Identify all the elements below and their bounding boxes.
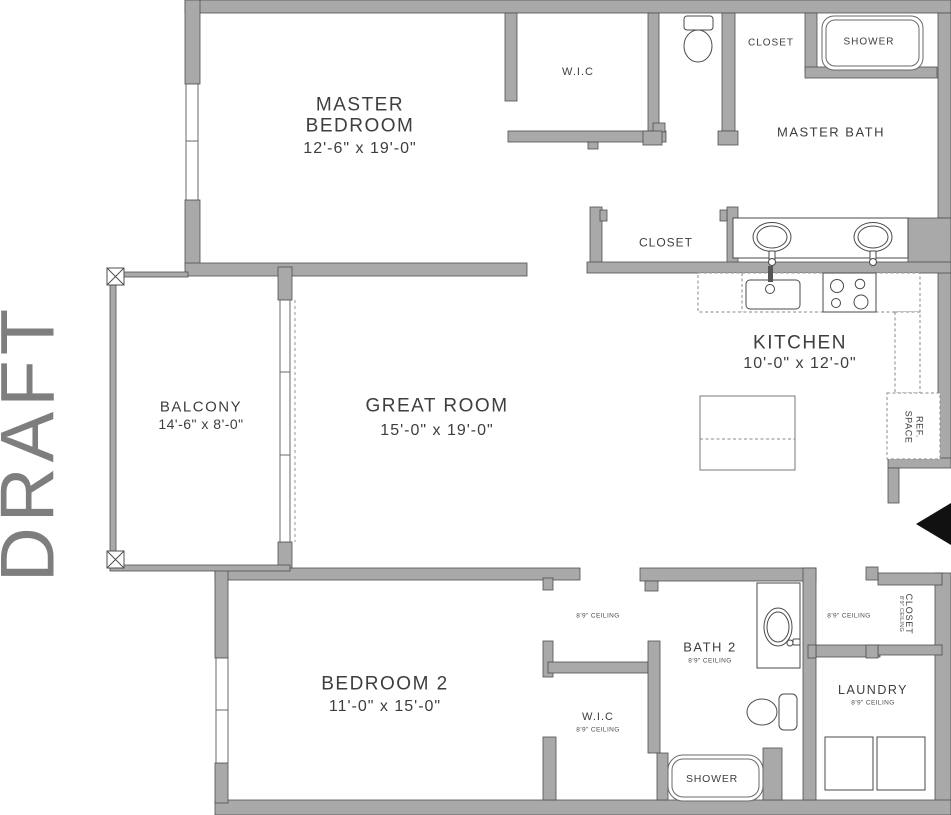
room-label-closet-right: CLOSET 8'9" CEILING: [898, 594, 914, 635]
vanity-sink-icon: [733, 218, 908, 266]
room-label-great-room: GREAT ROOM: [365, 395, 508, 416]
ceiling-note-hall-right: 8'9" CEILING: [827, 612, 870, 619]
cooktop-icon: [823, 273, 876, 312]
entry-arrow-icon: [916, 503, 951, 545]
room-label-master-bedroom: MASTER BEDROOM: [285, 95, 435, 138]
room-label-wic-bottom: W.I.C: [582, 711, 614, 723]
room-dims-kitchen: 10'-0" x 12'-0": [743, 355, 856, 373]
room-label-kitchen: KITCHEN: [753, 332, 847, 353]
room-label-shower-bottom: SHOWER: [686, 774, 738, 786]
ceiling-note-laundry: 8'9" CEILING: [851, 699, 894, 706]
ref-space-line1: REF.: [913, 411, 924, 444]
room-label-closet-top: CLOSET: [748, 37, 794, 48]
toilet-icon: [747, 694, 797, 730]
room-dims-bedroom2: 11'-0" x 15'-0": [329, 698, 441, 716]
floor-plan: DRAFT MASTER BEDROOM 12'-6" x 19'-0" W.I…: [0, 0, 951, 815]
room-label-shower-top: SHOWER: [844, 36, 895, 47]
room-label-laundry: LAUNDRY: [838, 683, 908, 697]
room-dims-balcony: 14'-6" x 8'-0": [158, 417, 243, 433]
room-dims-great-room: 15'-0" x 19'-0": [380, 422, 493, 440]
toilet-icon: [684, 16, 713, 62]
room-label-balcony: BALCONY: [160, 400, 242, 417]
room-label-wic-top: W.I.C: [562, 66, 594, 78]
kitchen-island: [700, 396, 795, 470]
bath2-sink-icon: [757, 583, 800, 668]
dryer-icon: [877, 737, 925, 790]
room-dims-master-bedroom: 12'-6" x 19'-0": [303, 140, 416, 158]
ceiling-note-bath2: 8'9" CEILING: [688, 657, 731, 664]
ref-space-label: REF. SPACE: [902, 411, 925, 444]
closet-right-name: CLOSET: [904, 594, 914, 635]
washer-icon: [825, 737, 873, 790]
sliding-door-icon: [280, 300, 295, 542]
room-label-closet-mid: CLOSET: [639, 236, 693, 249]
ref-space-line2: SPACE: [902, 411, 913, 444]
room-label-bedroom2: BEDROOM 2: [321, 673, 449, 694]
ceiling-note-hall-left: 8'9" CEILING: [576, 612, 619, 619]
ceiling-note-wic-bottom: 8'9" CEILING: [576, 726, 619, 733]
ceiling-note-closet-right: 8'9" CEILING: [898, 594, 904, 635]
room-label-master-bath: MASTER BATH: [777, 126, 885, 141]
room-label-bath2: BATH 2: [683, 641, 737, 656]
draft-watermark: DRAFT: [0, 304, 72, 582]
